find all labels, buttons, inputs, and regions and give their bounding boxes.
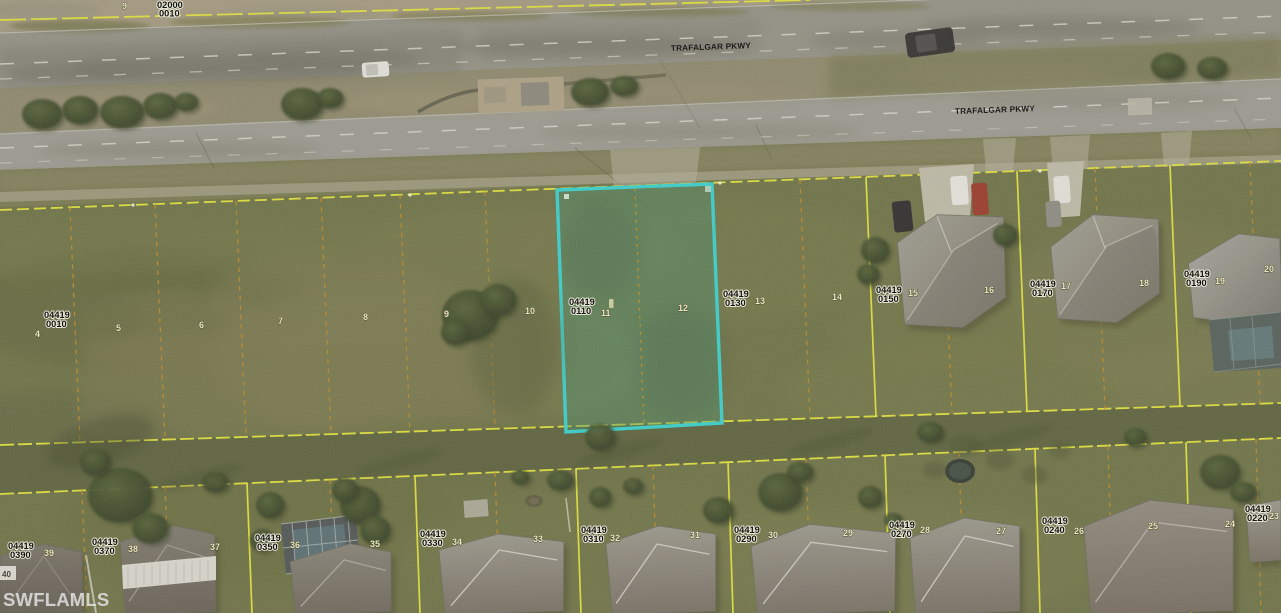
svg-text:0150: 0150 [878,294,899,304]
svg-text:9: 9 [444,309,449,319]
svg-text:0310: 0310 [583,534,604,544]
svg-text:SWFLAMLS: SWFLAMLS [3,589,109,610]
svg-text:29: 29 [843,528,853,538]
svg-text:33: 33 [533,534,543,544]
svg-text:10: 10 [525,306,535,316]
svg-text:20: 20 [1264,264,1274,274]
svg-text:34: 34 [452,537,462,547]
svg-text:12: 12 [678,303,688,313]
svg-text:0290: 0290 [736,534,757,544]
svg-text:0010: 0010 [159,9,180,19]
svg-text:38: 38 [128,544,138,554]
svg-text:15: 15 [908,288,918,298]
svg-text:0190: 0190 [1186,278,1207,288]
svg-text:35: 35 [370,539,380,549]
svg-text:11: 11 [601,308,611,318]
svg-text:8: 8 [363,312,368,322]
svg-text:4: 4 [35,329,40,339]
svg-text:30: 30 [768,530,778,540]
svg-text:27: 27 [996,526,1006,536]
svg-text:0270: 0270 [891,529,912,539]
svg-text:0110: 0110 [571,306,591,316]
svg-text:5: 5 [116,323,121,333]
svg-text:37: 37 [210,542,220,552]
svg-text:0130: 0130 [725,298,746,308]
svg-text:17: 17 [1061,281,1071,291]
svg-text:0370: 0370 [94,546,115,556]
svg-text:0330: 0330 [422,538,443,548]
svg-text:32: 32 [610,533,620,543]
svg-text:39: 39 [44,548,54,558]
svg-text:14: 14 [832,292,842,302]
svg-text:0010: 0010 [46,319,67,329]
svg-text:9: 9 [122,1,127,11]
svg-text:0390: 0390 [10,550,31,560]
svg-text:24: 24 [1225,519,1235,529]
svg-text:0170: 0170 [1032,288,1053,298]
svg-text:19: 19 [1215,276,1225,286]
svg-text:26: 26 [1074,526,1084,536]
svg-text:0240: 0240 [1044,525,1065,535]
svg-text:28: 28 [920,525,930,535]
svg-text:6: 6 [199,320,204,330]
svg-text:25: 25 [1148,521,1158,531]
svg-text:7: 7 [278,316,283,326]
svg-text:18: 18 [1139,278,1149,288]
svg-text:36: 36 [290,540,300,550]
svg-text:13: 13 [755,296,765,306]
svg-text:31: 31 [690,530,700,540]
svg-text:0220: 0220 [1247,513,1268,523]
svg-text:0350: 0350 [257,542,278,552]
svg-text:16: 16 [984,285,994,295]
svg-text:23: 23 [1269,511,1279,521]
